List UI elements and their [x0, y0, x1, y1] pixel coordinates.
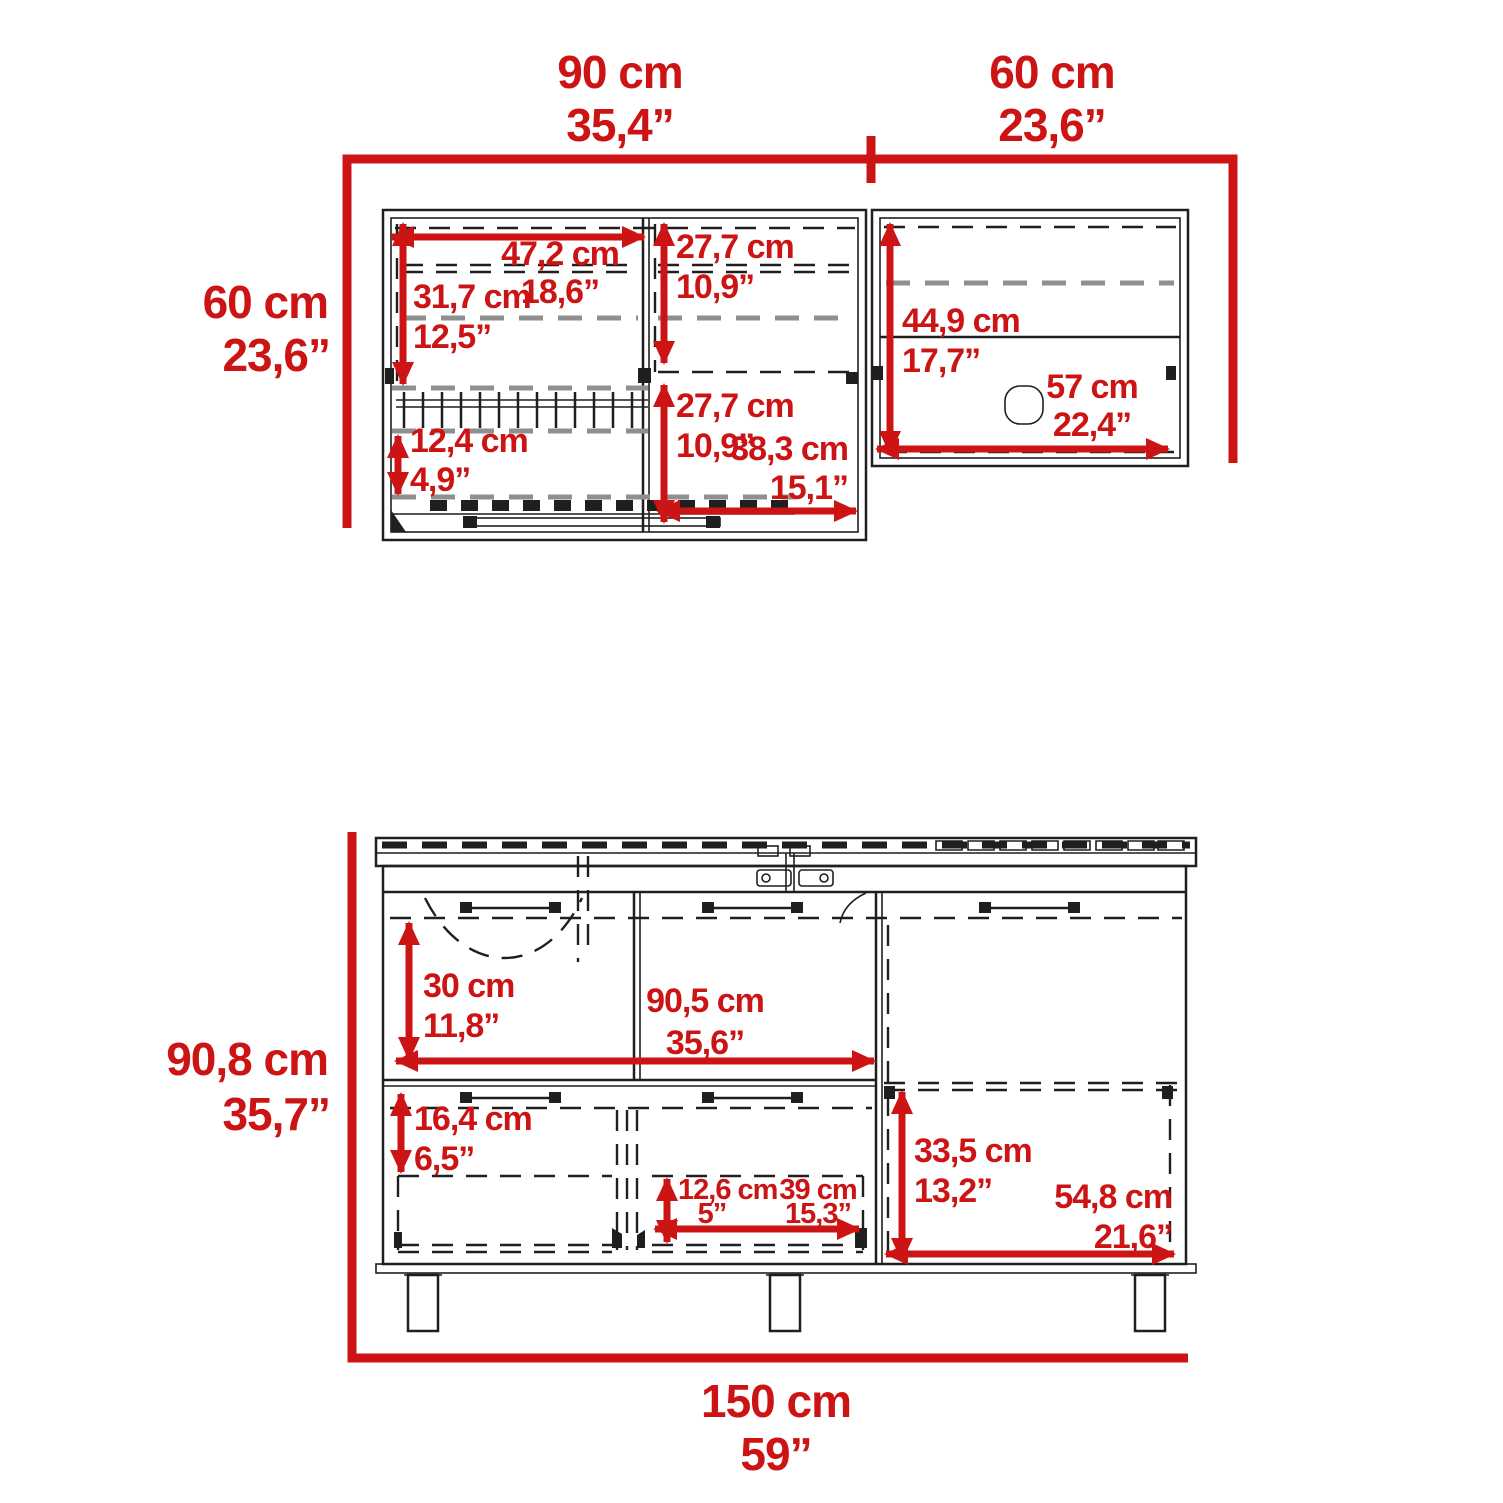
base-dim-labels: 30 cm 11,8” 90,5 cm 35,6” 16,4 cm 6,5” 1…	[414, 967, 1172, 1256]
dim-top-section-height-cm: 30 cm	[423, 967, 514, 1005]
dim-right-interior-height-cm: 44,9 cm	[902, 302, 1020, 340]
hinge-hardware	[884, 1086, 895, 1099]
dim-interior-width-cm: 90,5 cm	[646, 982, 764, 1020]
hinge-hardware	[385, 368, 394, 384]
upper-width-main-cm: 90 cm	[557, 46, 682, 98]
dim-lower-left-height-in: 6,5”	[414, 1140, 474, 1178]
upper-width-right-in: 23,6”	[998, 99, 1106, 151]
dim-door-width-in: 15,1”	[770, 469, 848, 507]
base-side-height-in: 35,7”	[222, 1088, 330, 1140]
hinge-hardware	[846, 372, 858, 384]
dim-upper-section-height-cm: 31,7 cm	[413, 278, 531, 316]
dim-right-door-height-in: 13,2”	[914, 1172, 992, 1210]
hinge-hardware	[873, 366, 883, 380]
cable-hole	[1005, 386, 1043, 424]
dim-inner-drawer-height-cm: 12,6 cm	[678, 1174, 777, 1206]
slide-hardware	[394, 1232, 402, 1248]
dim-lower-left-height-cm: 16,4 cm	[414, 1100, 532, 1138]
dim-top-section-height-in: 11,8”	[423, 1007, 499, 1045]
dim-upper-door-height-cm: 27,7 cm	[676, 228, 794, 266]
base-bottom-width-in: 59”	[740, 1428, 811, 1480]
door-handles	[460, 902, 1080, 913]
furniture-dimension-diagram: 90 cm 35,4” 60 cm 23,6” 60 cm 23,6”	[0, 0, 1503, 1503]
dim-interior-width-cm: 47,2 cm	[501, 235, 619, 273]
dim-right-door-height-cm: 33,5 cm	[914, 1132, 1032, 1170]
hinge-hardware	[638, 368, 651, 383]
dim-inner-drawer-width-in: 15,3”	[785, 1198, 851, 1230]
base-view: 90,8 cm 35,7” 150 cm 59”	[166, 832, 1196, 1480]
upper-width-right-cm: 60 cm	[989, 46, 1114, 98]
dim-right-interior-height-in: 17,7”	[902, 342, 980, 380]
upper-side-height-cm: 60 cm	[203, 276, 328, 328]
base-bottom-width-cm: 150 cm	[701, 1375, 851, 1427]
base-side-height-cm: 90,8 cm	[166, 1033, 328, 1085]
cabinet-legs	[404, 1275, 1169, 1331]
dim-rack-section-height-cm: 12,4 cm	[410, 422, 528, 460]
dim-door-width-cm: 38,3 cm	[730, 430, 848, 468]
upper-view: 90 cm 35,4” 60 cm 23,6” 60 cm 23,6”	[203, 46, 1233, 540]
dim-interior-width-in: 18,6”	[521, 273, 599, 311]
dim-interior-width-in: 35,6”	[666, 1024, 744, 1062]
dim-right-door-width-in: 21,6”	[1094, 1218, 1172, 1256]
dim-lower-door-height-cm: 27,7 cm	[676, 387, 794, 425]
upper-side-height-in: 23,6”	[222, 329, 330, 381]
upper-width-main-in: 35,4”	[566, 99, 674, 151]
hinge-hardware	[1166, 366, 1176, 380]
dim-right-door-width-cm: 54,8 cm	[1054, 1178, 1172, 1216]
diagram-canvas: 90 cm 35,4” 60 cm 23,6” 60 cm 23,6”	[0, 0, 1503, 1503]
dim-upper-section-height-in: 12,5”	[413, 318, 491, 356]
dim-right-interior-width-in: 22,4”	[1053, 406, 1131, 444]
dim-right-interior-width-cm: 57 cm	[1046, 368, 1137, 406]
hinge-hardware	[1162, 1086, 1173, 1099]
dim-rack-section-height-in: 4,9”	[410, 461, 470, 499]
slide-hardware	[612, 1228, 645, 1248]
dim-upper-door-height-in: 10,9”	[676, 268, 754, 306]
dim-inner-drawer-height-in: 5”	[698, 1198, 727, 1230]
